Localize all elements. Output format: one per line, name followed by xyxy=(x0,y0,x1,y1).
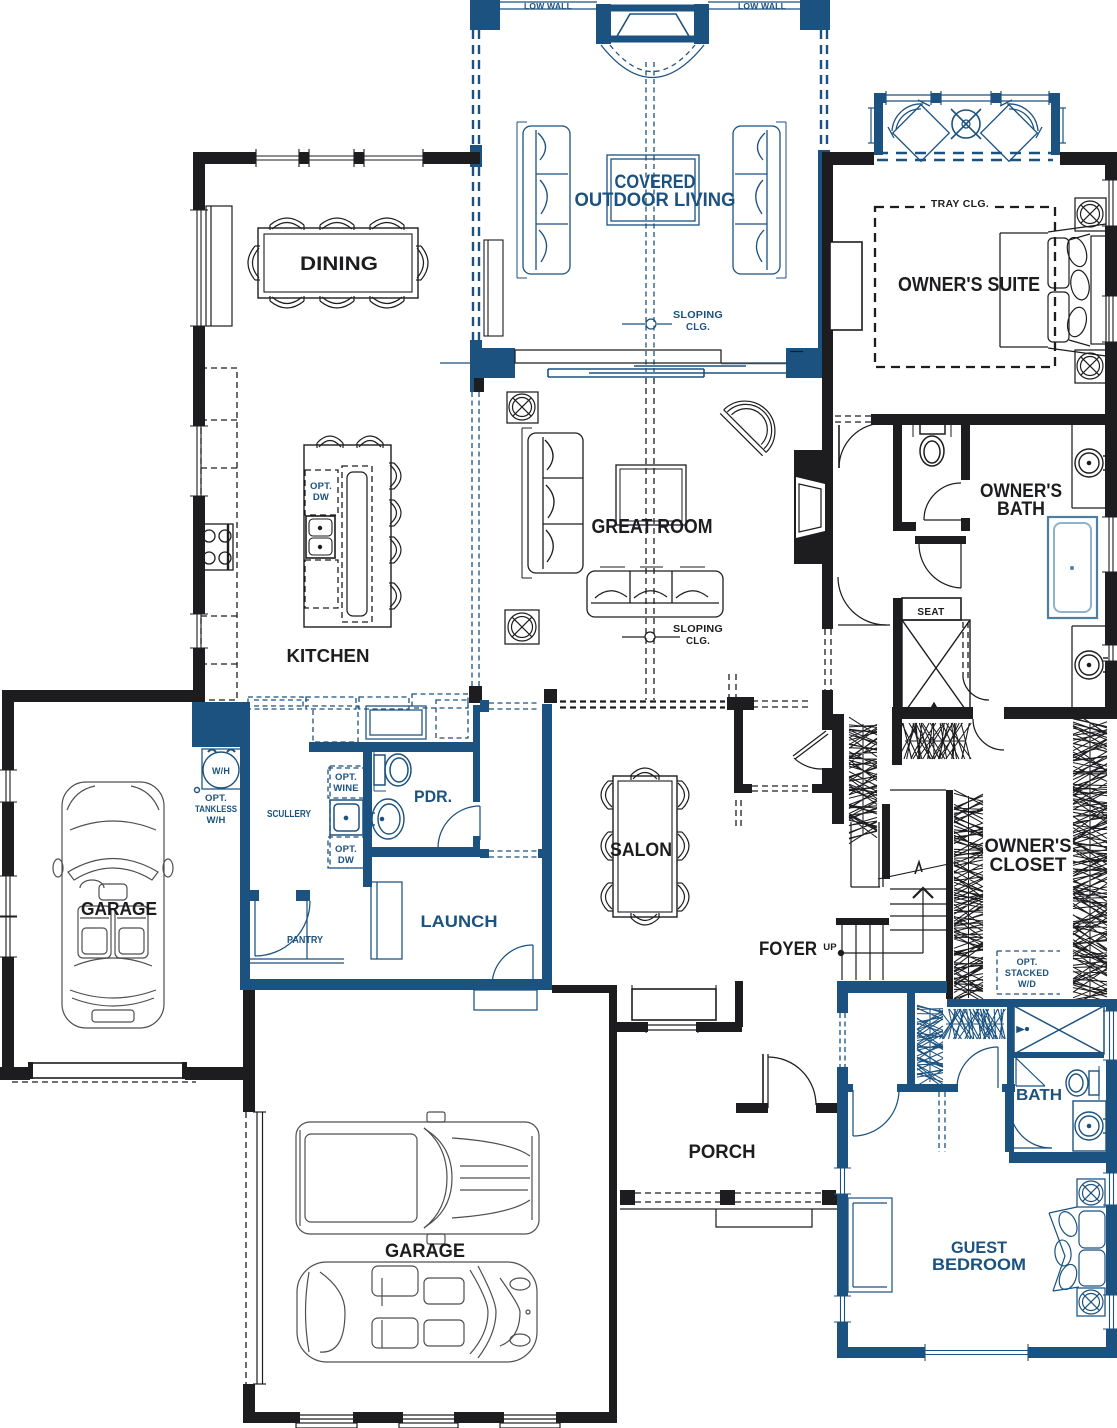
svg-text:SALON: SALON xyxy=(610,840,672,861)
svg-text:DINING: DINING xyxy=(300,254,378,275)
svg-text:LOW WALL: LOW WALL xyxy=(524,2,572,11)
svg-text:OWNER'S SUITE: OWNER'S SUITE xyxy=(898,274,1040,296)
svg-text:SEAT: SEAT xyxy=(917,607,944,618)
svg-text:KITCHEN: KITCHEN xyxy=(287,646,370,666)
svg-text:PANTRY: PANTRY xyxy=(287,935,323,946)
svg-text:WINE: WINE xyxy=(333,783,359,794)
svg-text:OPT.: OPT. xyxy=(205,793,227,804)
svg-text:GARAGE: GARAGE xyxy=(81,898,157,919)
svg-text:OPT.: OPT. xyxy=(335,772,357,783)
svg-text:STACKED: STACKED xyxy=(1005,968,1050,978)
svg-text:OPT.: OPT. xyxy=(310,481,332,492)
svg-text:OPT.: OPT. xyxy=(1017,957,1038,967)
svg-text:TRAY CLG.: TRAY CLG. xyxy=(931,198,989,210)
svg-text:CLOSET: CLOSET xyxy=(990,855,1067,876)
svg-text:W/D: W/D xyxy=(1018,979,1036,989)
svg-text:SLOPING: SLOPING xyxy=(673,310,723,321)
svg-text:BATH: BATH xyxy=(997,499,1045,520)
svg-text:SLOPING: SLOPING xyxy=(673,624,723,635)
svg-text:PORCH: PORCH xyxy=(689,1142,756,1163)
svg-text:DW: DW xyxy=(338,855,354,866)
svg-text:LAUNCH: LAUNCH xyxy=(421,912,498,931)
svg-text:GUEST: GUEST xyxy=(951,1239,1007,1257)
svg-text:W/H: W/H xyxy=(212,766,230,776)
svg-text:TANKLESS: TANKLESS xyxy=(195,804,237,815)
svg-text:UP: UP xyxy=(823,942,837,953)
svg-text:PDR.: PDR. xyxy=(414,787,452,806)
svg-text:W/H: W/H xyxy=(206,815,225,826)
svg-text:OPT.: OPT. xyxy=(335,844,357,855)
svg-text:OUTDOOR LIVING: OUTDOOR LIVING xyxy=(575,190,736,211)
svg-text:BEDROOM: BEDROOM xyxy=(932,1256,1026,1274)
svg-text:CLG.: CLG. xyxy=(686,636,710,647)
svg-text:OWNER'S: OWNER'S xyxy=(985,836,1072,857)
svg-text:GARAGE: GARAGE xyxy=(385,1241,465,1262)
svg-text:CLG.: CLG. xyxy=(686,322,710,333)
svg-text:GREAT ROOM: GREAT ROOM xyxy=(592,516,713,538)
svg-text:FOYER: FOYER xyxy=(759,939,817,960)
svg-text:BATH: BATH xyxy=(1016,1087,1062,1104)
svg-text:DW: DW xyxy=(313,492,329,503)
svg-text:LOW WALL: LOW WALL xyxy=(738,2,786,11)
svg-text:SCULLERY: SCULLERY xyxy=(267,809,311,820)
